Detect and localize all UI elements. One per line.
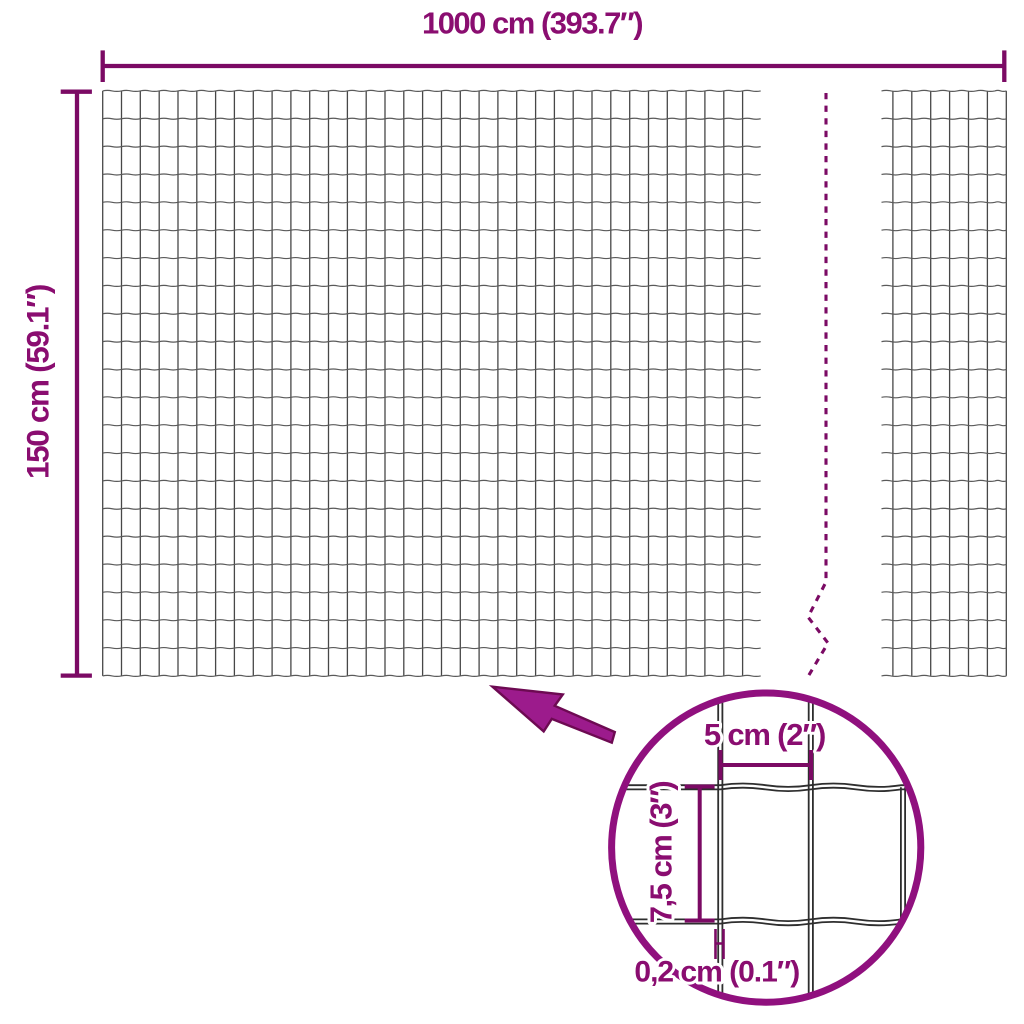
svg-text:150 cm (59.1″): 150 cm (59.1″) (20, 285, 56, 479)
svg-text:0,2 cm (0.1″): 0,2 cm (0.1″) (634, 956, 799, 989)
svg-text:1000 cm (393.7″): 1000 cm (393.7″) (422, 6, 642, 41)
svg-text:7,5 cm (3″): 7,5 cm (3″) (644, 782, 679, 924)
svg-text:5 cm (2″): 5 cm (2″) (704, 717, 825, 752)
